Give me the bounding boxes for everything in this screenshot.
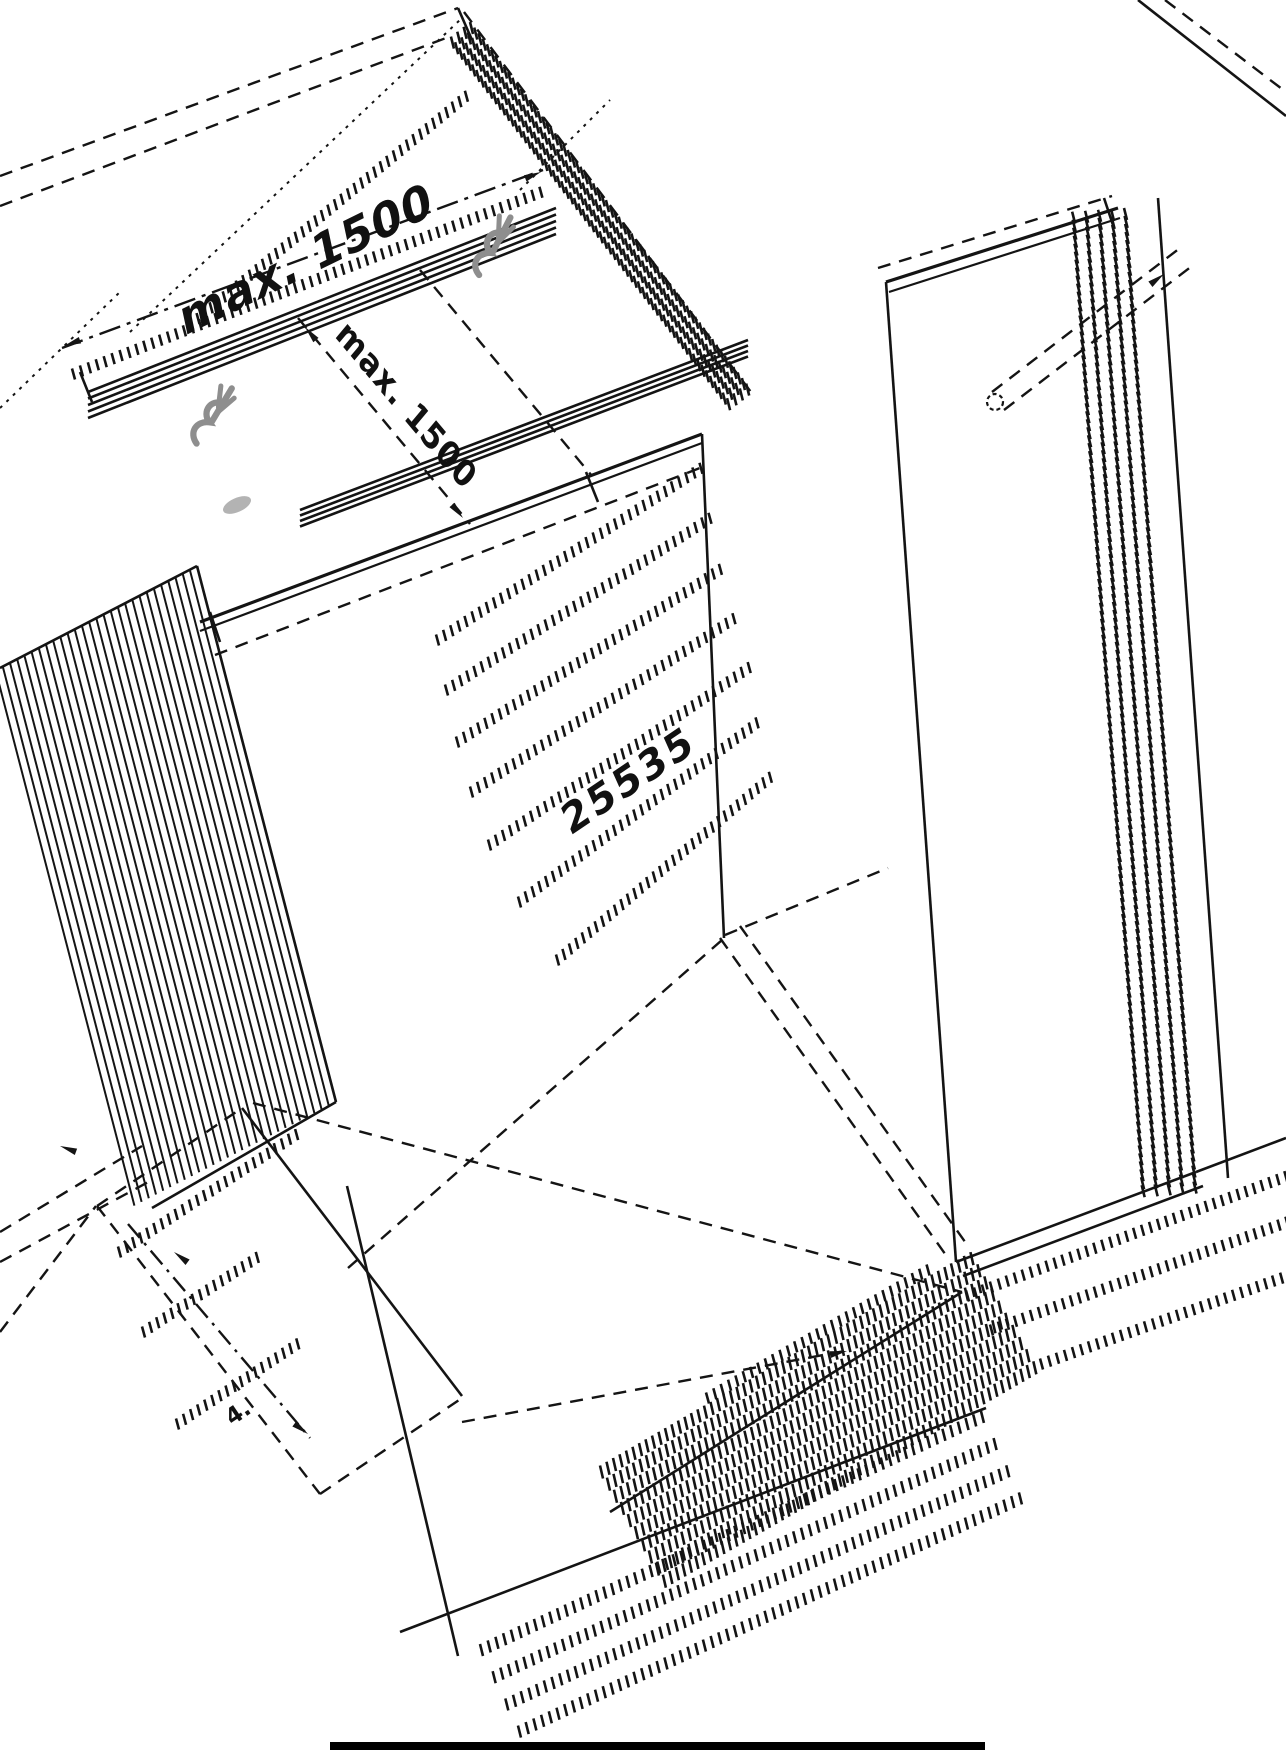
screw-icon bbox=[183, 384, 242, 444]
edge-on-panel-lines bbox=[0, 566, 336, 1206]
page-edge-bar bbox=[330, 1742, 985, 1750]
panel-edge-hatch-band bbox=[451, 22, 1197, 1738]
technical-drawing-page: max. 1500 max. 1500 25535 4. bbox=[0, 0, 1286, 1750]
dimension-label-top: max. 1500 bbox=[175, 172, 437, 348]
screw-icon bbox=[220, 493, 253, 518]
assembly-diagram: max. 1500 max. 1500 25535 4. bbox=[0, 0, 1286, 1750]
step-index-label: 4. bbox=[221, 1396, 256, 1431]
